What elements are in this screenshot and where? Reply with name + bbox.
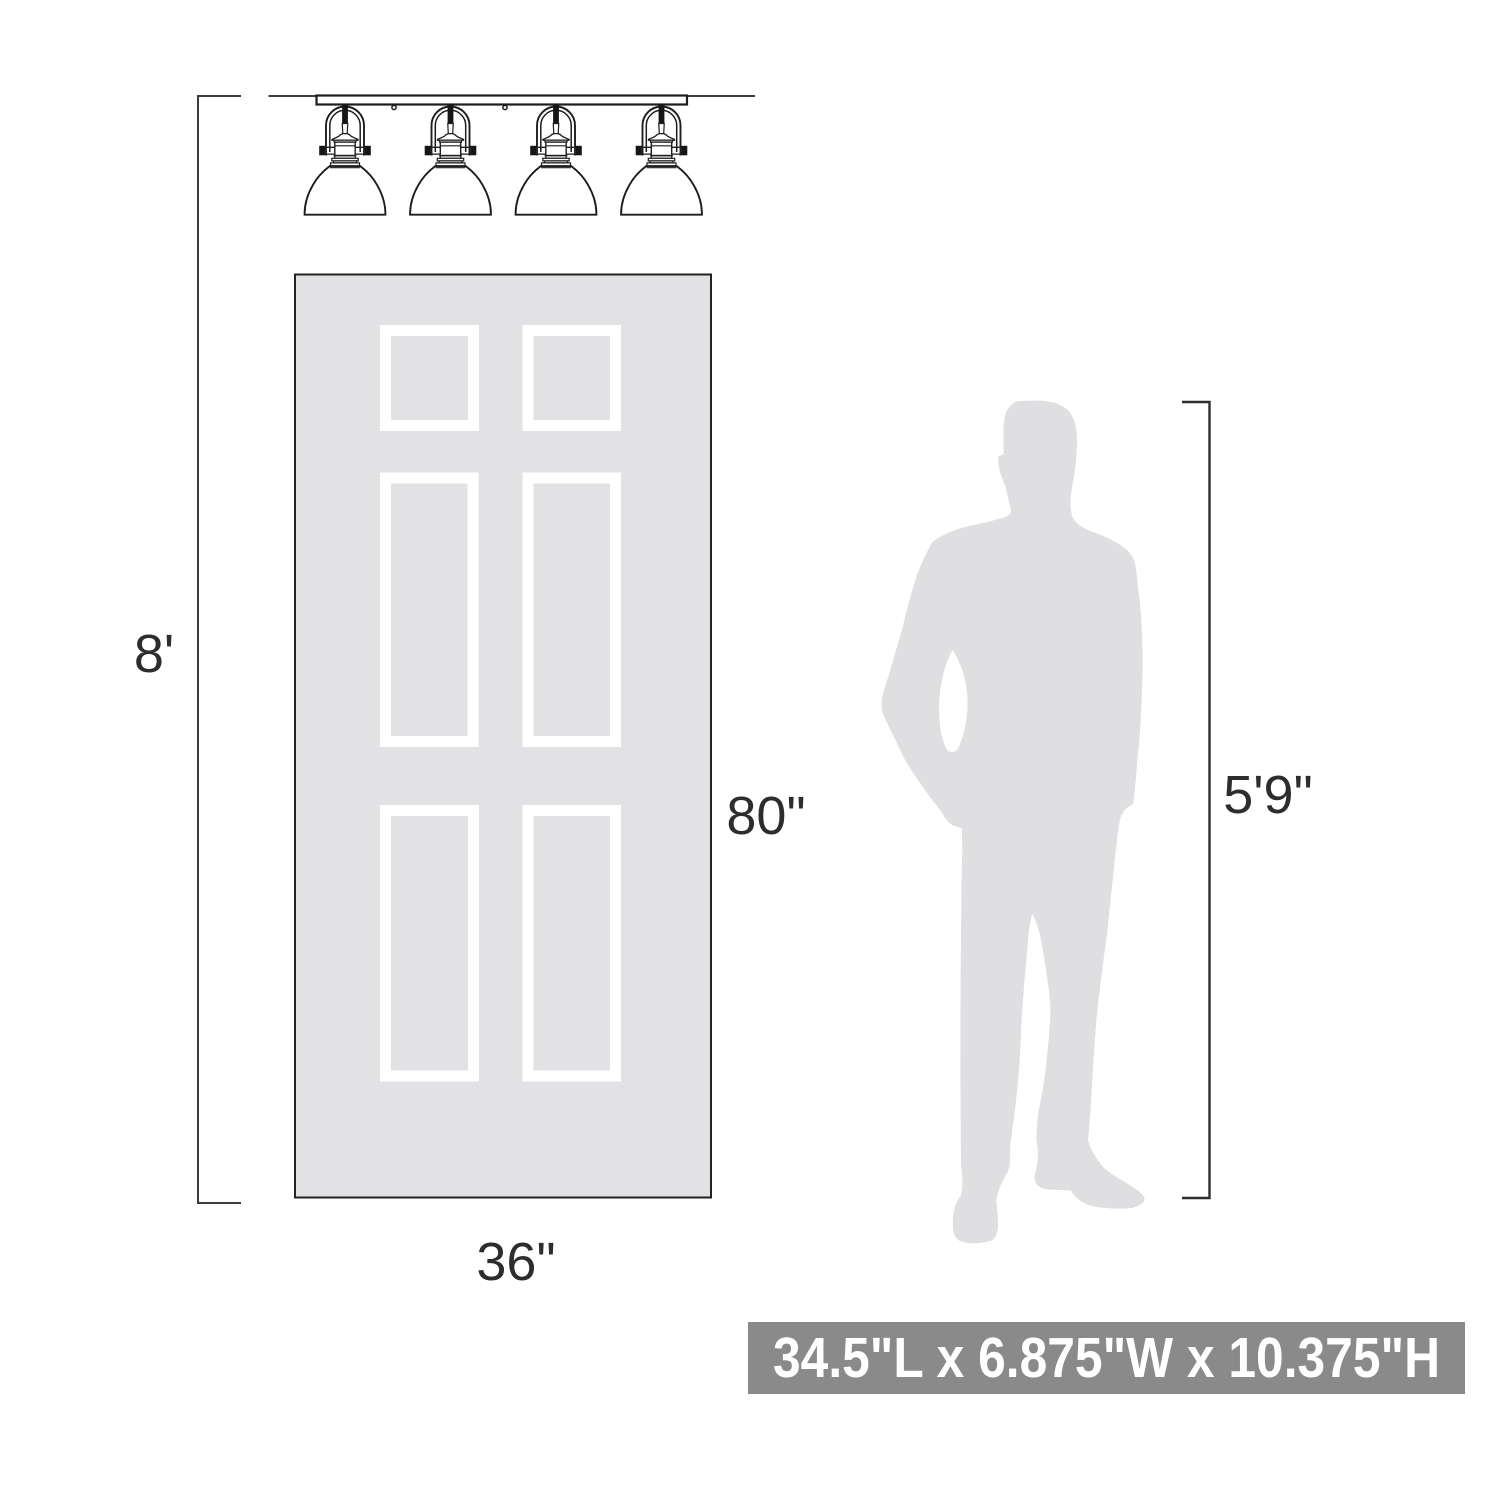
svg-text:5'9": 5'9": [1223, 765, 1313, 825]
svg-text:8': 8': [134, 624, 174, 684]
svg-text:36": 36": [476, 1232, 555, 1292]
svg-text:34.5"L x 6.875"W x 10.375"H: 34.5"L x 6.875"W x 10.375"H: [773, 1326, 1440, 1390]
svg-text:80": 80": [726, 786, 805, 846]
